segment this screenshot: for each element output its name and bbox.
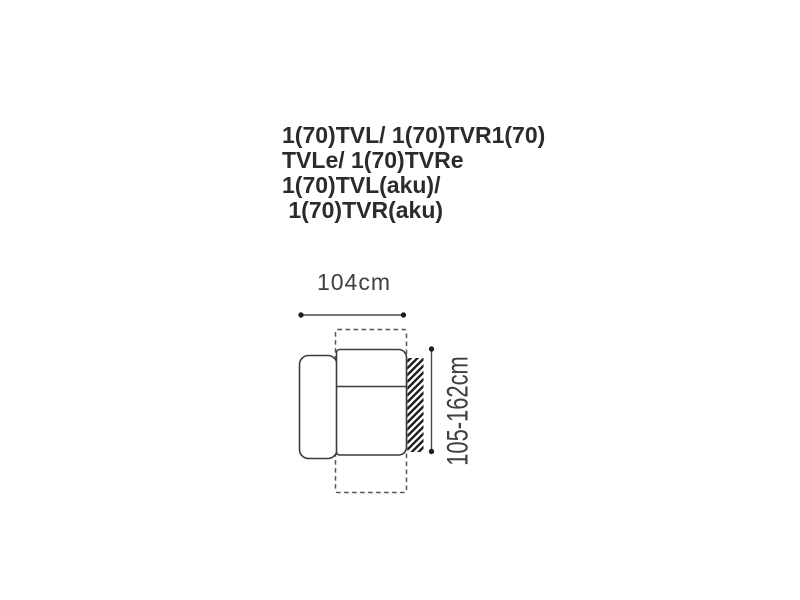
height-dimension-line — [429, 346, 434, 454]
dimension-endpoint-dot — [429, 449, 434, 454]
page-background: 1(70)TVL/ 1(70)TVR1(70) TVLe/ 1(70)TVRe … — [0, 0, 800, 600]
dimension-endpoint-dot — [298, 312, 303, 317]
width-dimension-label: 104cm — [317, 269, 391, 295]
furniture-diagram: 104cm 105-162cm — [0, 0, 800, 600]
width-dimension-line — [298, 312, 406, 317]
seat-module-outline — [337, 350, 407, 456]
backrest-hatch-area — [408, 358, 424, 452]
dimension-endpoint-dot — [401, 312, 406, 317]
dimension-endpoint-dot — [429, 346, 434, 351]
armrest-outline — [300, 356, 338, 459]
height-dimension-label: 105-162cm — [440, 356, 474, 466]
